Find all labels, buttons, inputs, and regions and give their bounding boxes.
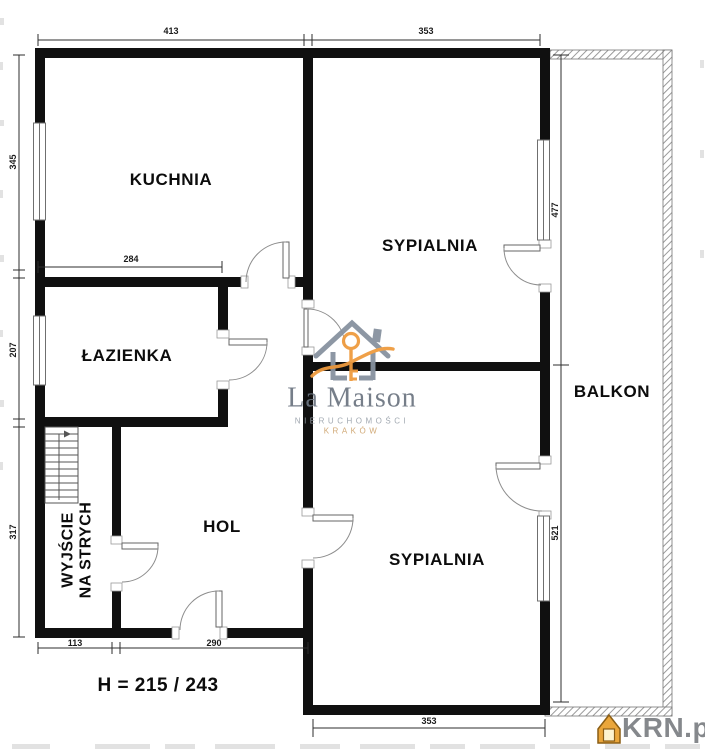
dim-right-bedroom-top: 477 (550, 202, 560, 217)
attic-exit-line2: NA STRYCH (78, 502, 96, 599)
watermark-brand-text: La Maison (287, 383, 417, 415)
room-label-hall: HOL (203, 517, 241, 537)
room-label-bathroom: ŁAZIENKA (82, 346, 173, 366)
watermark-subtitle-text: NIERUCHOMOŚCI (287, 417, 417, 426)
attic-exit-line1: WYJŚCIE (60, 502, 78, 599)
window-kitchen (34, 123, 46, 220)
dim-bottom-bedroom: 353 (421, 716, 436, 726)
dim-top-kitchen: 413 (163, 26, 178, 36)
dim-top-bedroom: 353 (418, 26, 433, 36)
door-bathroom (229, 339, 267, 380)
dim-kitchen-inner: 284 (123, 254, 138, 264)
dim-left-kitchen: 345 (8, 154, 18, 169)
wall-stairwell-right (112, 427, 121, 638)
dim-left-hall: 317 (8, 524, 18, 539)
window-bathroom (34, 316, 46, 385)
watermark-la-maison: La Maison NIERUCHOMOŚCI KRAKÓW (287, 383, 417, 436)
room-label-bedroom-bottom: SYPIALNIA (389, 550, 485, 570)
key-icon (312, 334, 393, 382)
wall-bathroom-bottom (35, 417, 228, 427)
stairs (45, 427, 78, 503)
door-balcony-top (504, 245, 541, 285)
room-label-kitchen: KUCHNIA (130, 170, 213, 190)
door-jambs (111, 240, 551, 639)
dim-bottom-stairwell: 113 (68, 638, 83, 648)
wall-central (303, 48, 313, 715)
dim-left-bathroom: 207 (8, 342, 18, 357)
la-maison-house-icon (312, 323, 393, 381)
door-openings (111, 247, 551, 639)
door-bedroom-bottom (313, 515, 353, 558)
ceiling-height-note: H = 215 / 243 (97, 675, 218, 697)
door-hall-bottom (180, 591, 222, 630)
room-label-attic-exit: WYJŚCIE NA STRYCH (60, 502, 97, 599)
krn-portal-logo-text: KRN.pl (622, 712, 705, 744)
doors (122, 242, 542, 630)
floor-plan-drawing (0, 0, 705, 750)
krn-house-icon (598, 715, 620, 743)
door-stairwell (122, 543, 158, 582)
dim-right-bedroom-bottom: 521 (550, 525, 560, 540)
floor-plan: KUCHNIA SYPIALNIA ŁAZIENKA HOL SYPIALNIA… (0, 0, 705, 750)
window-bedroom-bottom (538, 516, 550, 601)
walls (35, 48, 550, 715)
dim-bottom-hall: 290 (206, 638, 221, 648)
door-balcony-bottom (496, 463, 542, 511)
wall-top (35, 48, 545, 58)
room-label-balcony: BALKON (574, 382, 650, 402)
room-label-bedroom-top: SYPIALNIA (382, 236, 478, 256)
watermark-city-text: KRAKÓW (287, 427, 417, 436)
window-bedroom-top (538, 140, 550, 240)
wall-bedroom-bottom (303, 705, 550, 715)
